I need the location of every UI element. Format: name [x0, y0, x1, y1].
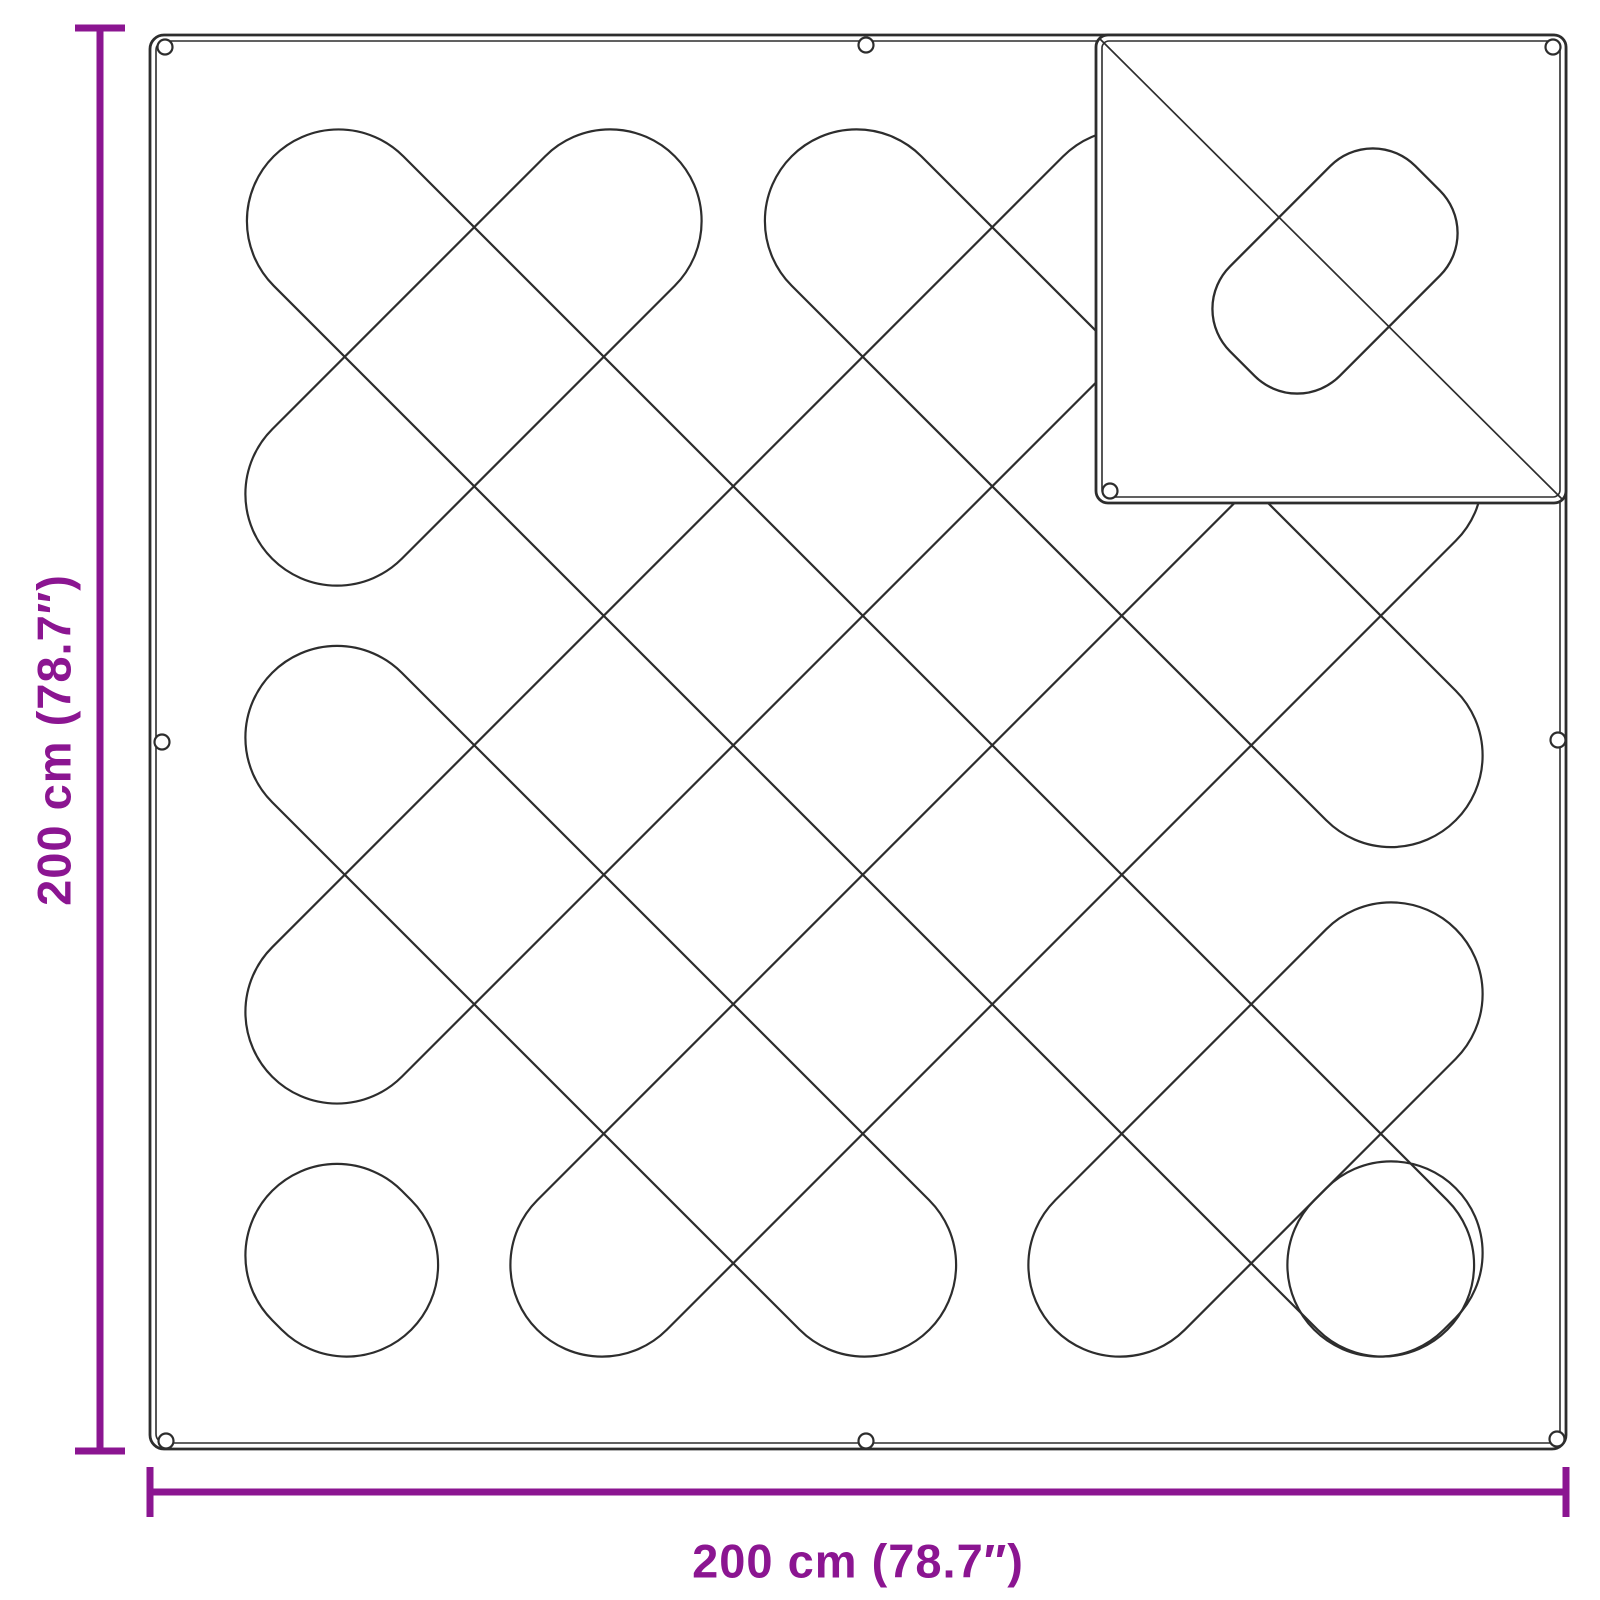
quilt-stitch-capsule-3	[207, 608, 994, 1395]
quilt-stitch-capsule-8	[990, 864, 1520, 1394]
quilt-stitch-capsule-4	[207, 1126, 476, 1395]
inset-grommet-1	[1546, 40, 1561, 55]
product-dimension-diagram: 200 cm (78.7″) 200 cm (78.7″)	[0, 0, 1600, 1600]
width-dimension-label: 200 cm (78.7″)	[692, 1534, 1024, 1589]
blanket-grommet-7	[1550, 1432, 1565, 1447]
quilt-stitch-capsule-5	[207, 91, 739, 623]
blanket-grommet-6	[859, 1434, 874, 1449]
inset-grommet-2	[1103, 484, 1118, 499]
blanket-grommet-5	[159, 1434, 174, 1449]
height-dimension-label: 200 cm (78.7″)	[27, 574, 82, 906]
quilt-stitch-capsule-9	[1249, 1123, 1520, 1394]
blanket-grommet-4	[1551, 733, 1566, 748]
blanket-grommet-3	[155, 735, 170, 750]
blanket-grommet-1	[158, 40, 173, 55]
blanket-grommet-2	[859, 38, 874, 53]
diagram-svg	[0, 0, 1600, 1600]
